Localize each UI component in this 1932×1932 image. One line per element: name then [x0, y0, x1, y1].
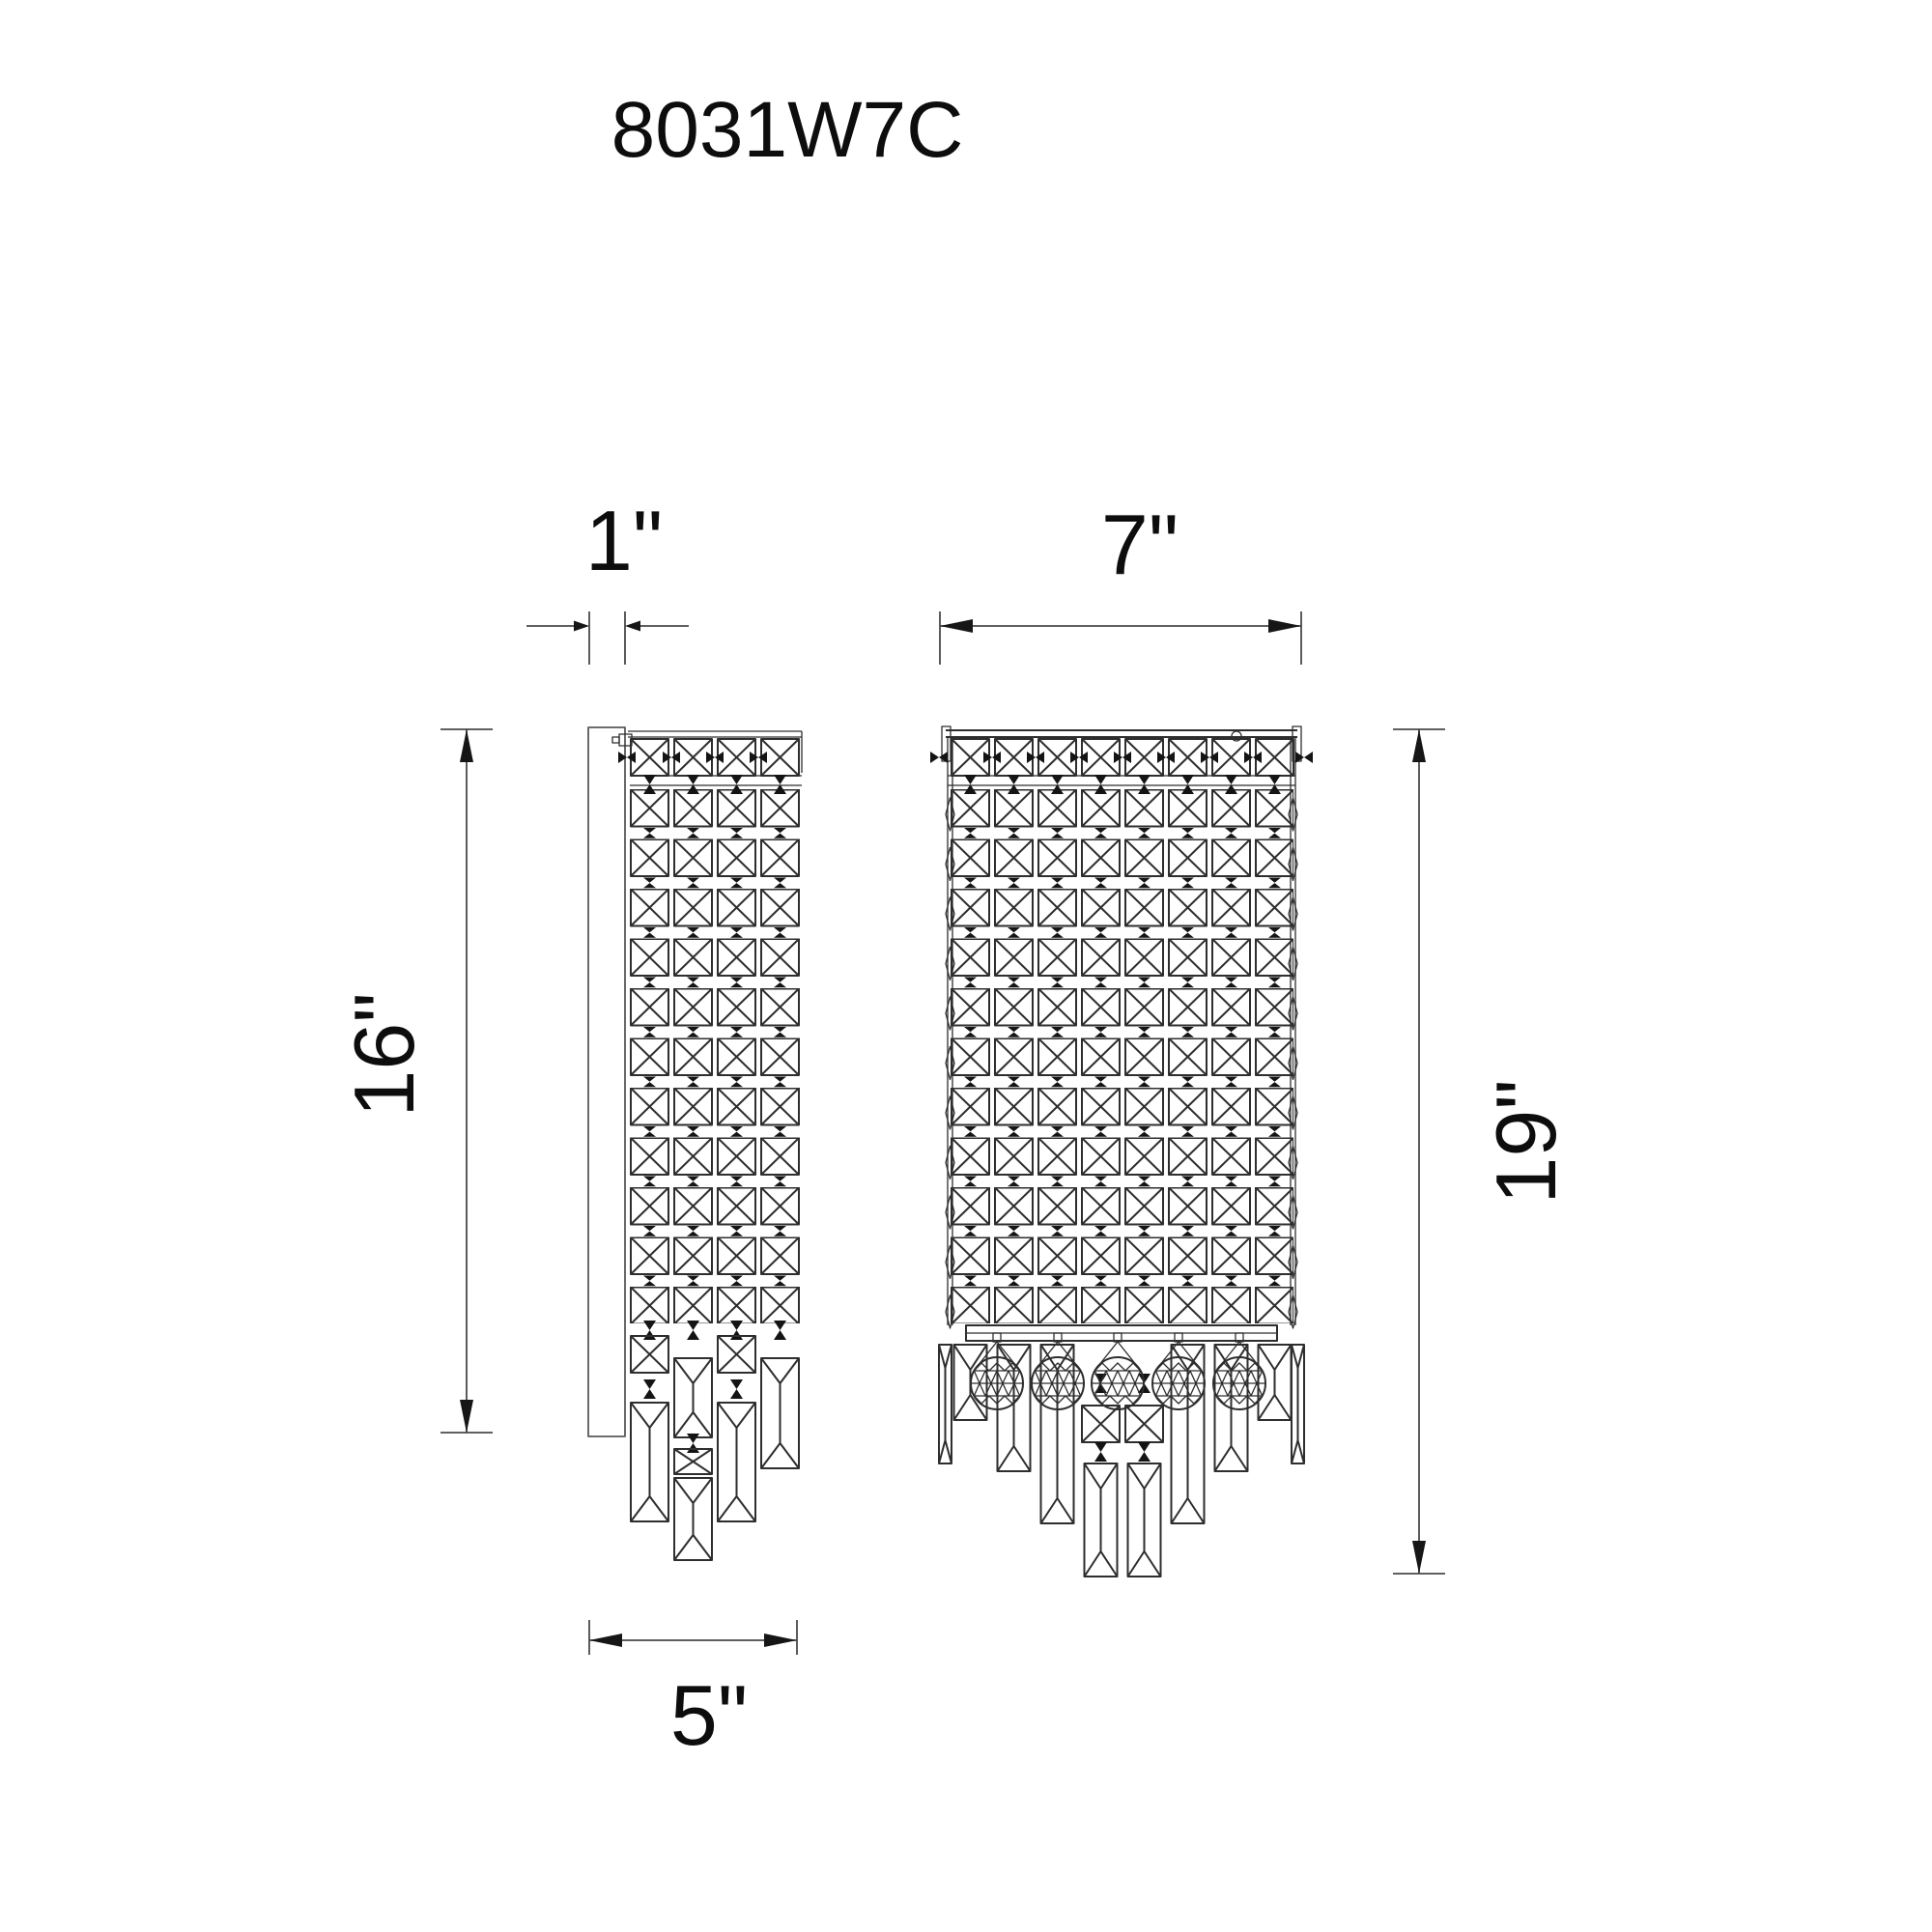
bead-connector — [706, 752, 724, 763]
drawing-canvas: 1" 7" 16" 19" 5" 8031W7C — [0, 0, 1932, 1932]
crystal-cell — [1125, 1406, 1163, 1442]
dimension-bottom-width: 5" — [589, 1620, 797, 1763]
front-crystal-grid — [951, 789, 1293, 1323]
dimension-backplate-height: 16" — [336, 729, 493, 1433]
crystal-cell — [631, 1336, 668, 1373]
bead-connector — [1094, 1442, 1107, 1462]
crystal-prism — [674, 1478, 712, 1560]
bead-connector — [687, 1321, 699, 1340]
crystal-prism — [1259, 1345, 1292, 1420]
bead-connector — [1244, 752, 1262, 763]
bead-connector — [1157, 752, 1175, 763]
model-number: 8031W7C — [611, 86, 964, 174]
crystal-prism — [1172, 1345, 1205, 1523]
bead-connector — [750, 752, 767, 763]
mounting-screw-icon — [612, 734, 632, 746]
front-view — [930, 726, 1313, 1577]
bead-connector — [663, 752, 680, 763]
bead-connector — [730, 1379, 743, 1399]
bead-connector — [1201, 752, 1218, 763]
bead-connector — [774, 1321, 786, 1340]
bead-connector — [643, 1379, 656, 1399]
bead-connector — [618, 752, 636, 763]
crystal-prism — [1128, 1463, 1161, 1577]
dimension-frame-width: 7" — [940, 497, 1301, 665]
side-drop-crystal — [939, 1345, 952, 1463]
dim-label-backplate-height: 16" — [336, 992, 432, 1117]
side-crystal-grid — [630, 789, 804, 1323]
side-drop-crystal — [1292, 1345, 1304, 1463]
front-rail — [948, 776, 1295, 785]
crystal-prism — [761, 1358, 799, 1468]
crystal-cell — [1082, 1406, 1120, 1442]
bead-connector — [1114, 752, 1131, 763]
crystal-cell — [718, 1336, 755, 1373]
dim-label-backplate-depth: 1" — [585, 493, 663, 588]
dim-label-overall-height: 19" — [1478, 1079, 1574, 1204]
crystal-prism — [718, 1403, 755, 1521]
bead-connector — [1027, 752, 1044, 763]
bead-connector — [730, 775, 743, 794]
crystal-prism — [1085, 1463, 1118, 1577]
bead-connector — [687, 775, 699, 794]
bead-connector — [983, 752, 1001, 763]
crystal-prism — [631, 1403, 668, 1521]
front-top-rail — [946, 730, 1297, 737]
side-view — [588, 727, 804, 1560]
bead-connector — [643, 775, 656, 794]
dimension-drawing: 1" 7" 16" 19" 5" 8031W7C — [0, 0, 1932, 1932]
dimension-backplate-depth: 1" — [526, 493, 689, 665]
crystal-ball — [1092, 1333, 1144, 1409]
bead-connector — [1070, 752, 1088, 763]
bead-connector — [1138, 1442, 1151, 1462]
bead-connector — [1295, 752, 1313, 763]
dim-label-frame-width: 7" — [1101, 497, 1179, 592]
bead-connector — [774, 775, 786, 794]
crystal-prism — [674, 1358, 712, 1437]
dimension-overall-height: 19" — [1393, 729, 1574, 1574]
wall-backplate — [588, 727, 625, 1436]
bead-connector — [964, 775, 977, 794]
dim-label-bottom-width: 5" — [670, 1667, 748, 1763]
